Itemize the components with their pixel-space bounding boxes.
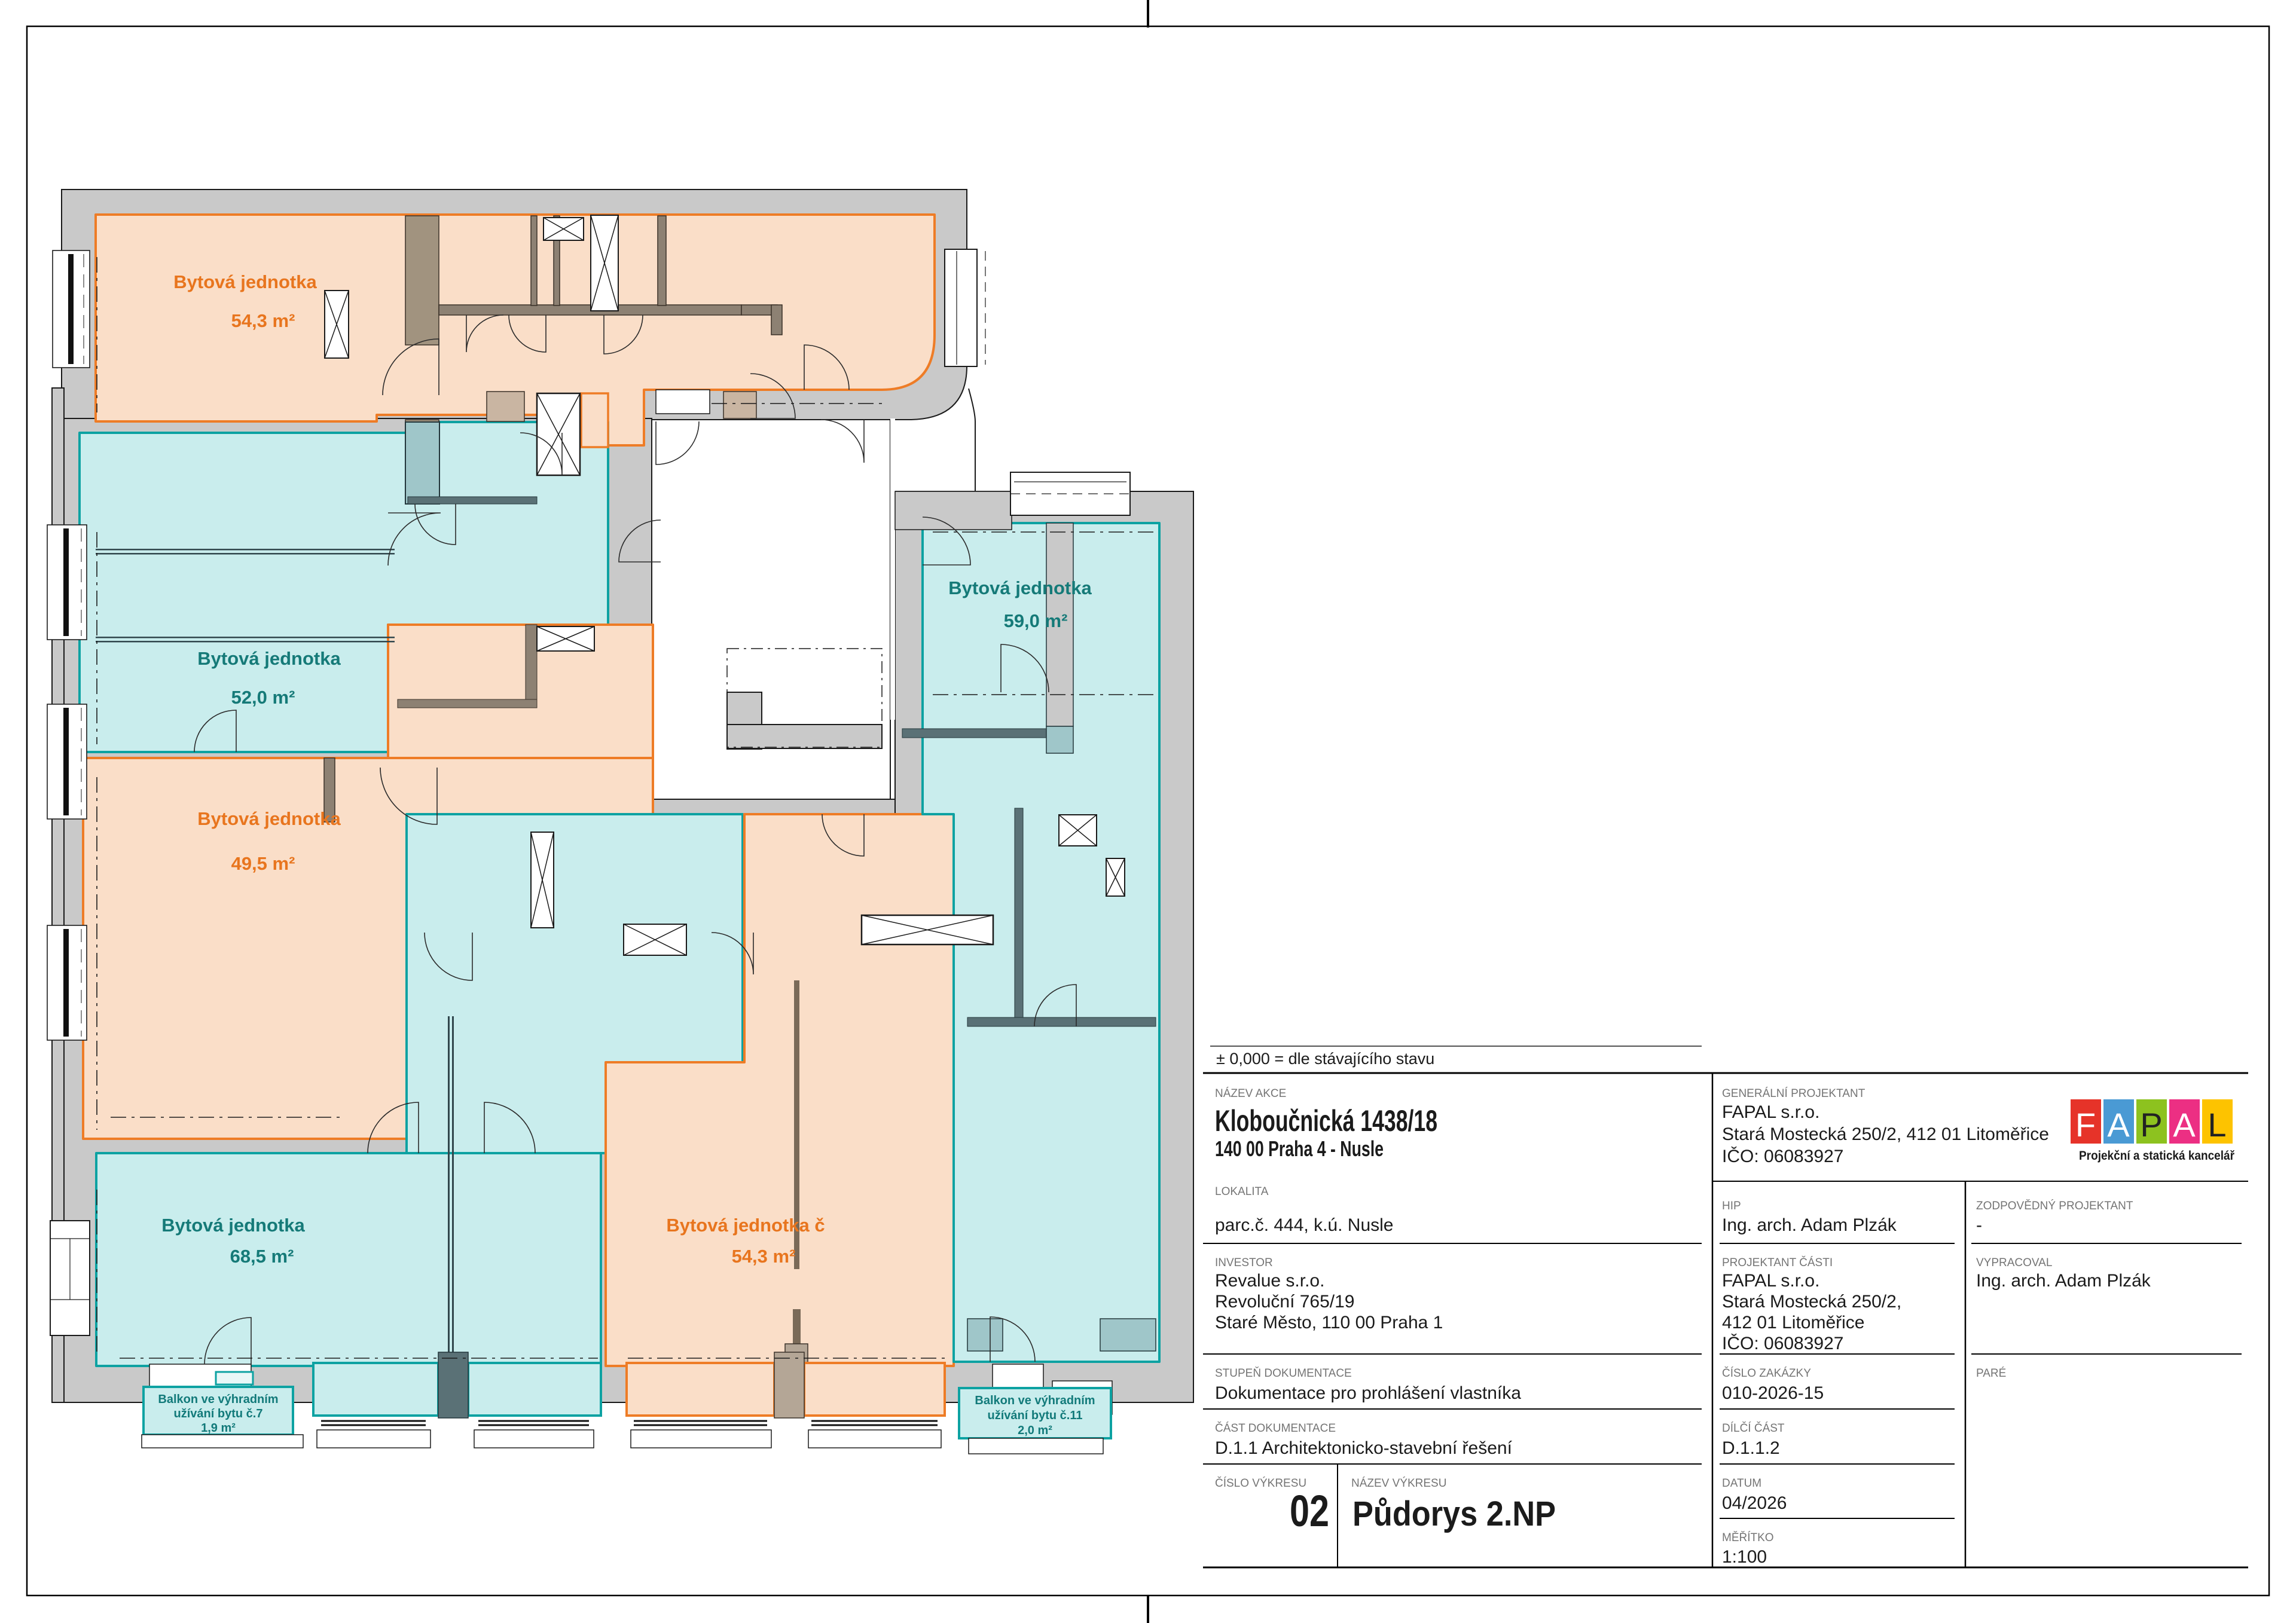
svg-text:Kloboučnická 1438/18: Kloboučnická 1438/18 [1215,1104,1437,1138]
svg-text:FAPAL s.r.o.: FAPAL s.r.o. [1722,1102,1819,1122]
svg-text:ČÁST DOKUMENTACE: ČÁST DOKUMENTACE [1215,1422,1336,1435]
svg-text:-: - [1976,1215,1982,1235]
svg-text:GENERÁLNÍ PROJEKTANT: GENERÁLNÍ PROJEKTANT [1722,1087,1865,1100]
svg-text:1,9 m²: 1,9 m² [201,1422,236,1435]
svg-text:± 0,000 = dle stávajícího stav: ± 0,000 = dle stávajícího stavu [1216,1050,1434,1068]
svg-text:ČÍSLO ZAKÁZKY: ČÍSLO ZAKÁZKY [1722,1367,1811,1380]
svg-text:Bytová jednotka: Bytová jednotka [161,1215,305,1236]
svg-text:užívání bytu č.11: užívání bytu č.11 [988,1409,1083,1422]
svg-text:INVESTOR: INVESTOR [1215,1257,1273,1269]
svg-text:ZODPOVĚDNÝ PROJEKTANT: ZODPOVĚDNÝ PROJEKTANT [1976,1199,2133,1212]
svg-text:Bytová jednotka: Bytová jednotka [948,577,1092,598]
svg-text:Revoluční 765/19: Revoluční 765/19 [1215,1292,1355,1312]
svg-text:PARÉ: PARÉ [1976,1367,2006,1380]
svg-text:Stará Mostecká 250/2, 412 01 L: Stará Mostecká 250/2, 412 01 Litoměřice [1722,1124,2049,1144]
svg-text:54,3 m²: 54,3 m² [732,1246,796,1267]
svg-text:Půdorys 2.NP: Půdorys 2.NP [1352,1494,1556,1533]
svg-text:Revalue s.r.o.: Revalue s.r.o. [1215,1271,1324,1291]
svg-text:Projekční a statická kancelář: Projekční a statická kancelář [2079,1149,2235,1163]
svg-text:Stará Mostecká 250/2,: Stará Mostecká 250/2, [1722,1292,1901,1312]
svg-text:NÁZEV AKCE: NÁZEV AKCE [1215,1087,1286,1100]
svg-text:Ing. arch. Adam Plzák: Ing. arch. Adam Plzák [1976,1271,2151,1291]
svg-text:Bytová jednotka č: Bytová jednotka č [666,1215,825,1236]
svg-text:VYPRACOVAL: VYPRACOVAL [1976,1257,2052,1269]
svg-text:Bytová jednotka: Bytová jednotka [197,648,341,669]
svg-text:F: F [2075,1106,2096,1144]
svg-text:PROJEKTANT ČÁSTI: PROJEKTANT ČÁSTI [1722,1256,1833,1269]
svg-text:užívání bytu č.7: užívání bytu č.7 [174,1407,263,1420]
svg-text:DÍLČÍ ČÁST: DÍLČÍ ČÁST [1722,1422,1785,1435]
svg-text:52,0 m²: 52,0 m² [231,687,295,708]
svg-text:Dokumentace pro prohlášení vla: Dokumentace pro prohlášení vlastníka [1215,1383,1521,1403]
svg-text:D.1.1 Architektonicko-stavební: D.1.1 Architektonicko-stavební řešení [1215,1438,1513,1458]
svg-text:MĚŘÍTKO: MĚŘÍTKO [1722,1531,1774,1544]
svg-text:Balkon ve výhradním: Balkon ve výhradním [975,1394,1095,1407]
svg-text:1:100: 1:100 [1722,1547,1767,1567]
svg-text:412 01 Litoměřice: 412 01 Litoměřice [1722,1313,1864,1332]
svg-text:DATUM: DATUM [1722,1477,1761,1490]
svg-text:140 00 Praha 4 - Nusle: 140 00 Praha 4 - Nusle [1215,1136,1384,1161]
svg-text:L: L [2208,1106,2226,1144]
svg-text:59,0 m²: 59,0 m² [1004,610,1068,631]
svg-text:68,5 m²: 68,5 m² [230,1246,294,1267]
svg-text:HIP: HIP [1722,1200,1741,1212]
svg-text:STUPEŇ DOKUMENTACE: STUPEŇ DOKUMENTACE [1215,1367,1352,1380]
svg-text:Bytová jednotka: Bytová jednotka [197,808,341,829]
svg-text:010-2026-15: 010-2026-15 [1722,1383,1824,1403]
svg-text:2,0 m²: 2,0 m² [1018,1424,1052,1437]
svg-text:04/2026: 04/2026 [1722,1493,1787,1513]
svg-text:IČO: 06083927: IČO: 06083927 [1722,1333,1843,1353]
svg-text:P: P [2140,1106,2162,1144]
svg-text:LOKALITA: LOKALITA [1215,1185,1269,1198]
svg-text:A: A [2173,1106,2196,1144]
svg-text:Bytová jednotka: Bytová jednotka [173,271,317,292]
svg-text:FAPAL s.r.o.: FAPAL s.r.o. [1722,1271,1819,1291]
svg-text:Staré Město, 110 00 Praha 1: Staré Město, 110 00 Praha 1 [1215,1313,1443,1332]
svg-text:NÁZEV VÝKRESU: NÁZEV VÝKRESU [1351,1477,1446,1490]
svg-text:02: 02 [1290,1486,1329,1536]
svg-text:IČO: 06083927: IČO: 06083927 [1722,1146,1843,1166]
svg-text:A: A [2107,1106,2130,1144]
svg-text:54,3 m²: 54,3 m² [231,310,295,331]
svg-text:parc.č. 444, k.ú. Nusle: parc.č. 444, k.ú. Nusle [1215,1215,1393,1235]
svg-text:49,5 m²: 49,5 m² [231,853,295,874]
svg-text:Ing. arch. Adam Plzák: Ing. arch. Adam Plzák [1722,1215,1897,1235]
svg-text:D.1.1.2: D.1.1.2 [1722,1438,1780,1458]
svg-text:Balkon ve výhradním: Balkon ve výhradním [158,1393,278,1406]
